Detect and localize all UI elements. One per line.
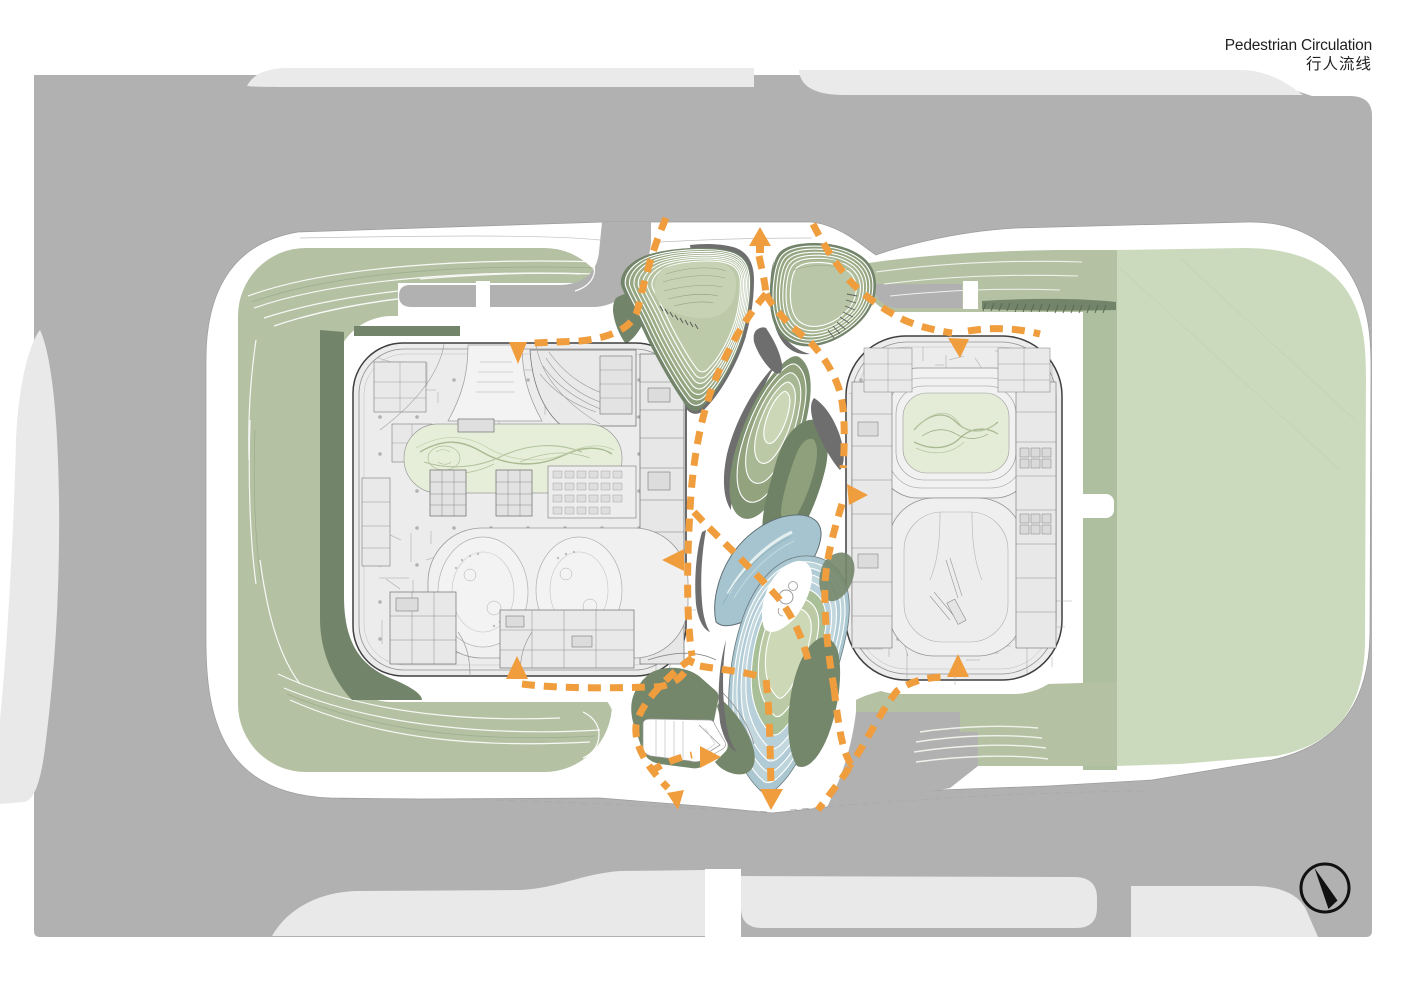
svg-text:Pedestrian Circulation: Pedestrian Circulation xyxy=(1225,37,1372,54)
svg-text:行人流线: 行人流线 xyxy=(1306,55,1372,73)
